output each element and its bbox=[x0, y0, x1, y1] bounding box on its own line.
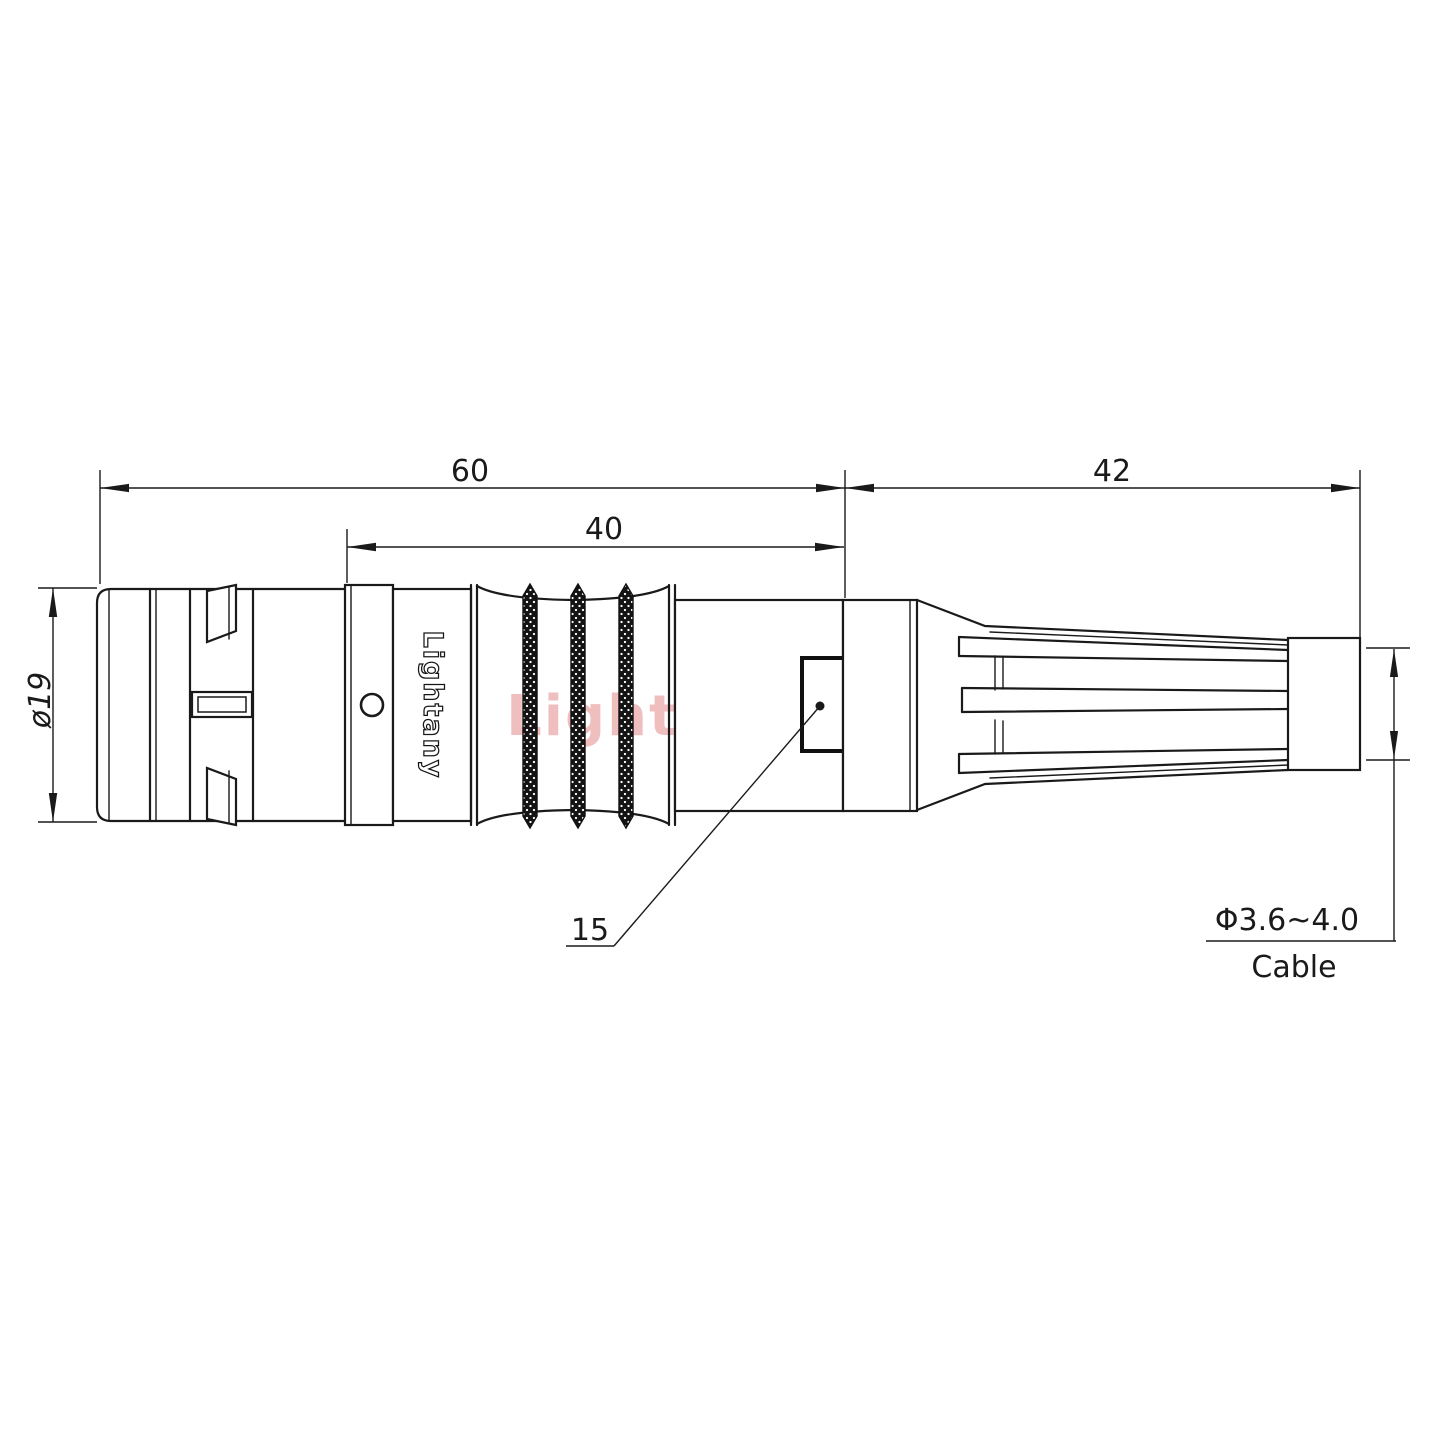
dim-text-cable-range: Φ3.6~4.0 bbox=[1215, 903, 1359, 938]
drawing-canvas: Lightany bbox=[0, 0, 1440, 1440]
mid-body: Lightany bbox=[393, 589, 471, 821]
keyway-slot-bottom bbox=[207, 768, 236, 825]
dim-text-relief: 42 bbox=[1093, 454, 1131, 489]
cable-end-cap bbox=[1288, 638, 1360, 770]
dim-text-overall: 60 bbox=[451, 454, 489, 489]
dim-text-feature: 15 bbox=[571, 913, 609, 948]
locating-hole bbox=[361, 694, 383, 716]
dim-text-mid: 40 bbox=[585, 512, 623, 547]
strain-relief-base bbox=[843, 600, 917, 811]
dim-text-diameter: ø19 bbox=[23, 672, 58, 730]
collar-ring bbox=[345, 585, 393, 825]
middle-slot bbox=[192, 692, 252, 717]
knurl-strip bbox=[571, 584, 585, 828]
body-engraving-text: Lightany bbox=[417, 631, 448, 780]
knurl-strip bbox=[619, 584, 633, 828]
keyway-slot-top bbox=[207, 585, 236, 642]
knurl-strip bbox=[523, 584, 537, 828]
connector-technical-drawing: Lightany bbox=[0, 0, 1440, 1440]
dim-text-cable-word: Cable bbox=[1251, 950, 1336, 985]
